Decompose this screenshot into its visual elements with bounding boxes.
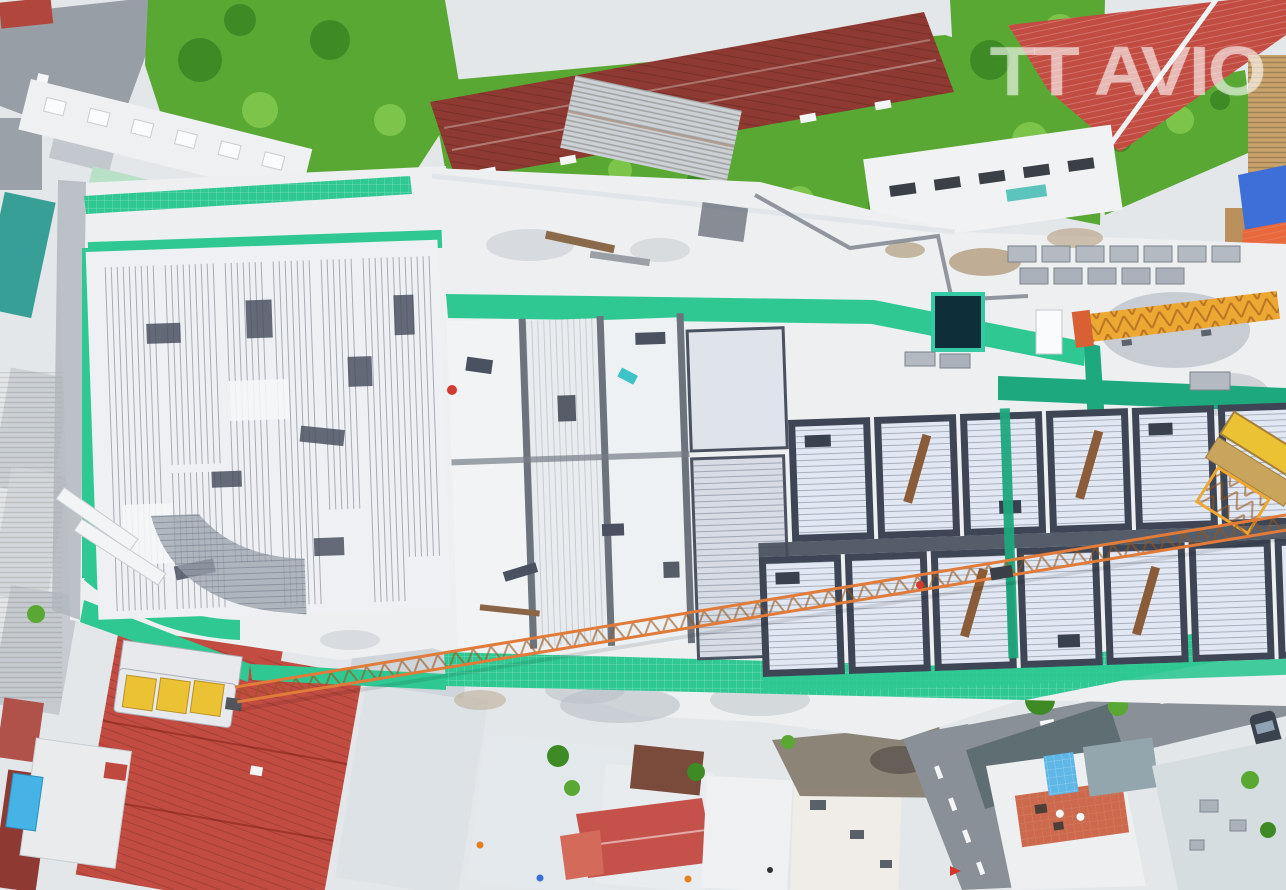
scene-svg <box>0 0 1286 890</box>
cell <box>1046 408 1132 533</box>
blue-tarp <box>1238 165 1286 230</box>
cell <box>788 417 874 542</box>
cell <box>1189 539 1275 662</box>
cell <box>874 414 960 539</box>
cell <box>845 551 931 674</box>
cell <box>1132 405 1218 530</box>
shaft-pit <box>933 294 983 350</box>
aerial-photo: TT AVIO <box>0 0 1286 890</box>
site-container <box>1036 310 1062 354</box>
